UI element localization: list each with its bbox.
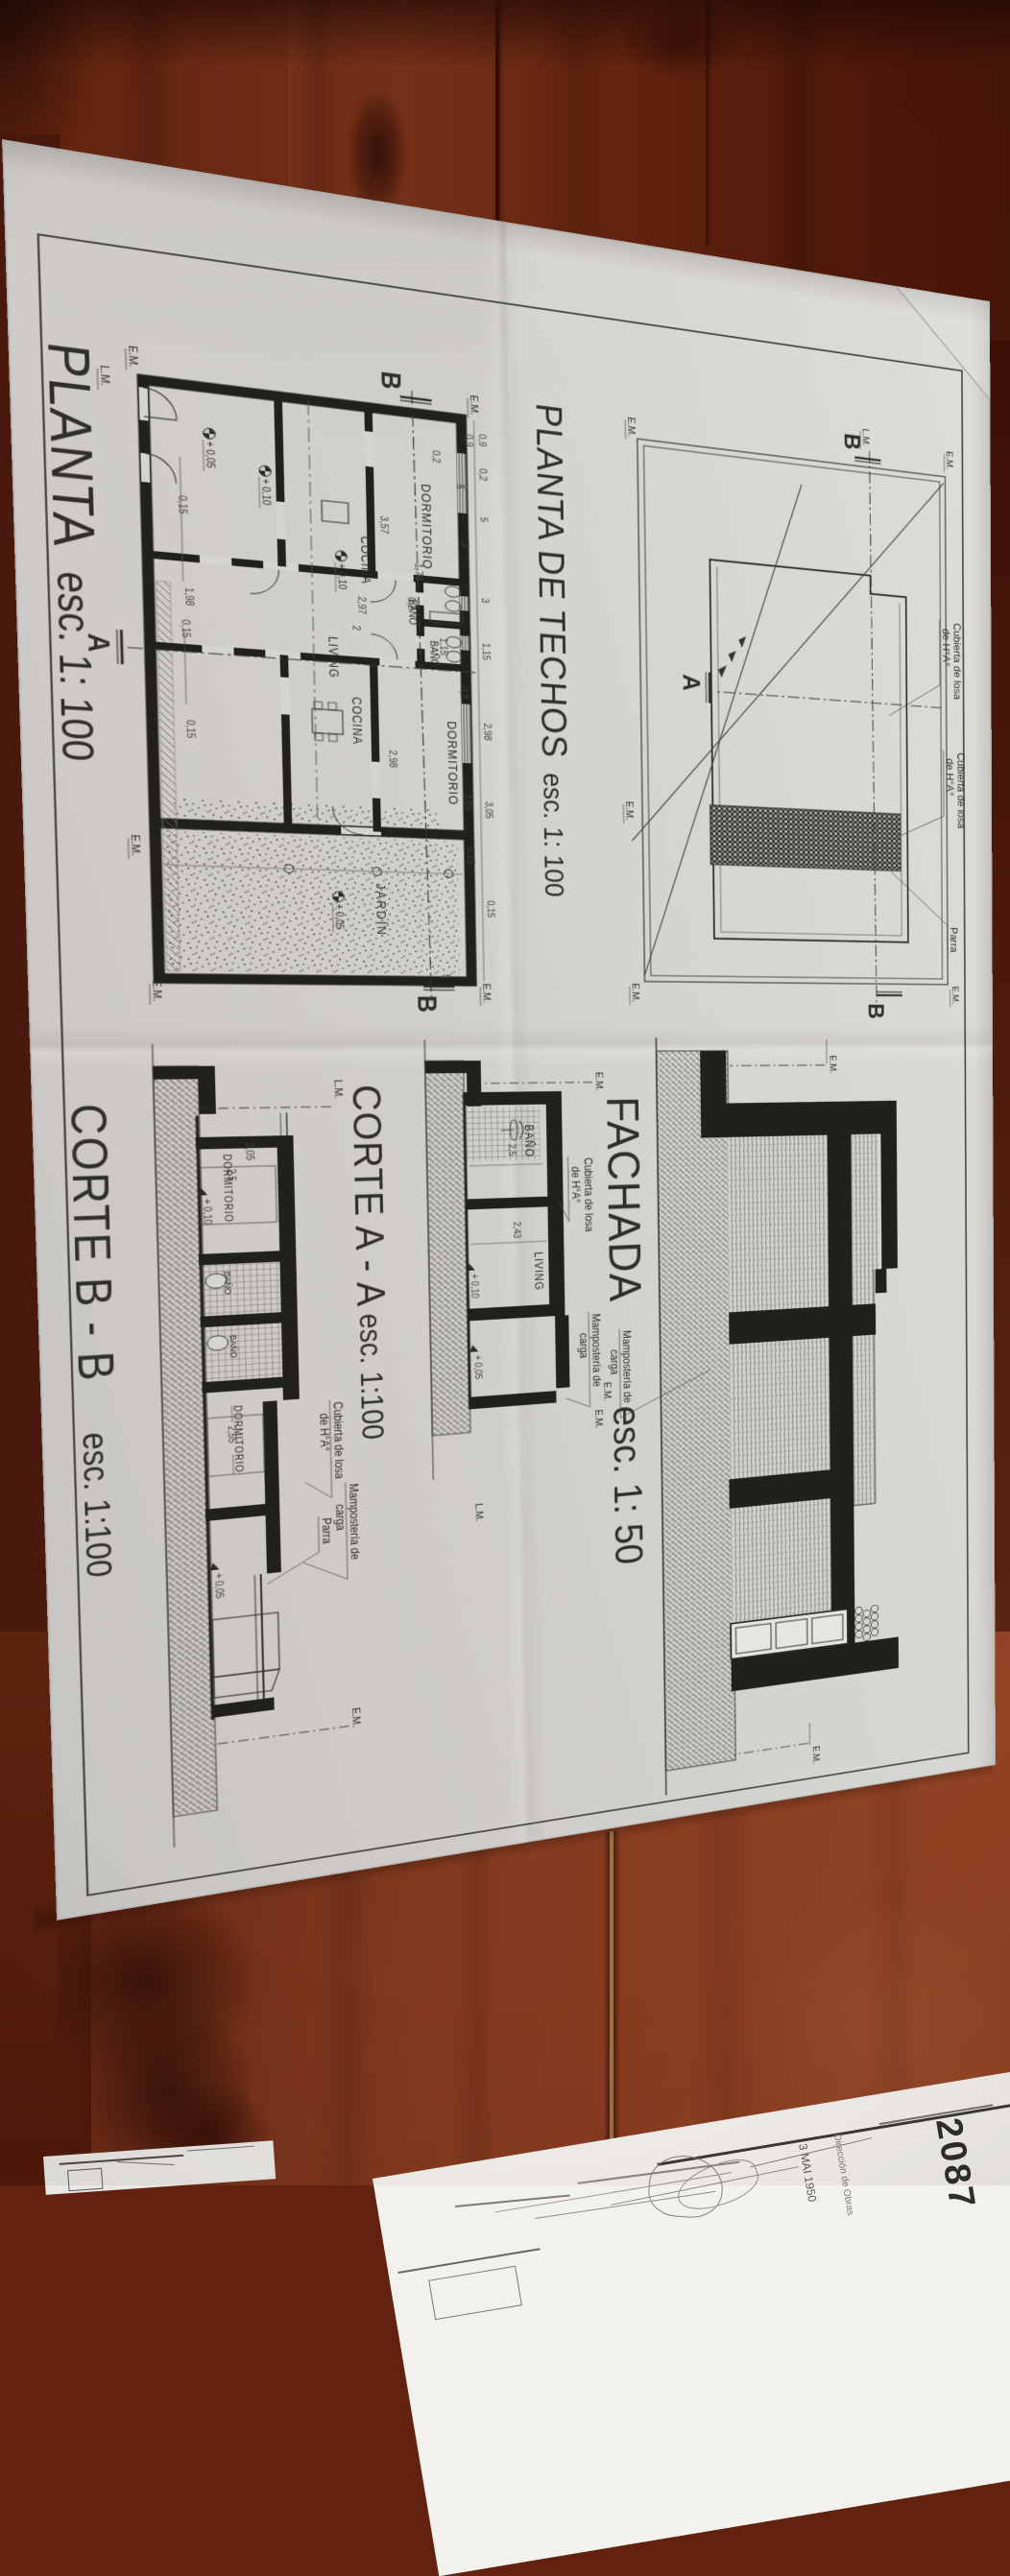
svg-text:esc. 1: 100: esc. 1: 100 — [48, 570, 104, 763]
svg-text:2,55: 2,55 — [226, 1425, 237, 1443]
svg-text:E.M.: E.M. — [944, 450, 953, 470]
svg-text:1,98: 1,98 — [183, 587, 195, 607]
svg-text:2,97: 2,97 — [356, 596, 368, 615]
svg-text:B: B — [863, 1003, 887, 1019]
svg-text:+ 0,05: + 0,05 — [472, 1355, 483, 1380]
svg-text:0,15: 0,15 — [177, 495, 188, 515]
svg-text:BAÑO: BAÑO — [222, 1271, 233, 1295]
svg-text:CORTE B - B: CORTE B - B — [59, 1104, 123, 1384]
svg-text:LIVING: LIVING — [325, 636, 339, 680]
svg-text:E.M.: E.M. — [810, 1745, 820, 1764]
svg-text:3,57: 3,57 — [378, 515, 389, 535]
svg-text:Parra: Parra — [949, 927, 960, 953]
svg-text:DORMITORIO: DORMITORIO — [419, 483, 435, 570]
svg-text:A: A — [678, 674, 704, 692]
svg-text:L.M.: L.M. — [97, 365, 110, 387]
svg-text:E.M.: E.M. — [349, 1707, 361, 1729]
svg-text:de H°A°: de H°A° — [940, 629, 951, 667]
svg-text:de H°A°: de H°A° — [569, 1166, 582, 1204]
svg-text:5: 5 — [441, 974, 451, 979]
svg-text:esc. 1: 100: esc. 1: 100 — [538, 773, 570, 897]
svg-text:2: 2 — [350, 625, 361, 631]
svg-text:+ 0,10: + 0,10 — [469, 1274, 480, 1299]
svg-text:esc. 1:100: esc. 1:100 — [75, 1431, 121, 1580]
svg-text:PLANTA DE TECHOS: PLANTA DE TECHOS — [528, 401, 574, 759]
svg-text:3,05: 3,05 — [484, 801, 494, 819]
svg-text:0,2: 0,2 — [406, 597, 417, 610]
svg-text:E.M.: E.M. — [468, 394, 479, 417]
svg-text:1,15: 1,15 — [438, 637, 448, 656]
svg-text:0,9: 0,9 — [464, 434, 474, 447]
svg-text:DORMITORIO: DORMITORIO — [221, 1154, 233, 1223]
svg-text:carga: carga — [577, 1332, 589, 1359]
svg-text:2,98: 2,98 — [482, 723, 493, 741]
svg-text:0,15: 0,15 — [485, 900, 495, 918]
svg-text:DORMITORIO: DORMITORIO — [445, 721, 461, 806]
svg-text:E.M.: E.M. — [128, 834, 141, 856]
svg-text:0,2: 0,2 — [458, 685, 469, 699]
svg-text:E.M.: E.M. — [630, 983, 640, 1002]
svg-text:5: 5 — [454, 484, 465, 489]
svg-text:esc. 1:100: esc. 1:100 — [352, 1313, 389, 1442]
svg-text:0,15: 0,15 — [465, 847, 475, 864]
svg-text:3,05: 3,05 — [462, 793, 472, 811]
svg-text:0,15: 0,15 — [180, 619, 191, 638]
svg-text:2,05: 2,05 — [244, 1142, 255, 1160]
svg-text:2,43: 2,43 — [512, 1222, 522, 1239]
svg-text:E.M.: E.M. — [625, 417, 636, 438]
svg-text:FACHADA: FACHADA — [597, 1096, 650, 1303]
svg-text:Cubierta de losa: Cubierta de losa — [955, 752, 967, 829]
svg-text:5: 5 — [478, 516, 489, 522]
svg-text:Mampostería de: Mampostería de — [589, 1313, 602, 1387]
svg-text:PLANTA: PLANTA — [35, 339, 106, 552]
svg-text:+ 0,10: + 0,10 — [202, 1199, 213, 1225]
svg-text:BAÑO: BAÑO — [522, 1125, 536, 1158]
svg-text:+ 0,10: + 0,10 — [336, 563, 348, 590]
svg-text:Cubierta de losa: Cubierta de losa — [582, 1157, 594, 1233]
svg-text:de H°A°: de H°A° — [317, 1413, 330, 1452]
svg-text:+ 0,05: + 0,05 — [333, 904, 345, 930]
svg-text:COCINA: COCINA — [349, 697, 363, 746]
svg-text:Parra: Parra — [319, 1517, 332, 1545]
svg-text:0,9: 0,9 — [477, 434, 488, 447]
svg-text:Cubierta de losa: Cubierta de losa — [951, 623, 964, 701]
svg-text:A: A — [81, 632, 114, 654]
svg-text:E.M.: E.M. — [480, 984, 492, 1004]
svg-text:BAÑO: BAÑO — [228, 1334, 239, 1358]
svg-text:E.M.: E.M. — [126, 345, 139, 369]
svg-text:LIVING: LIVING — [532, 1252, 544, 1291]
svg-text:E.M.: E.M. — [828, 1055, 837, 1073]
svg-text:E.M.: E.M. — [950, 987, 959, 1005]
svg-text:JARDÍN: JARDÍN — [373, 883, 391, 937]
svg-text:0,2: 0,2 — [430, 450, 441, 464]
svg-text:Mampostería de: Mampostería de — [620, 1330, 633, 1403]
svg-text:L.M.: L.M. — [472, 1503, 484, 1522]
svg-text:carga: carga — [608, 1349, 619, 1376]
svg-text:2,5: 2,5 — [226, 1169, 237, 1182]
svg-text:Cubierta de losa: Cubierta de losa — [330, 1401, 345, 1480]
svg-text:E.M.: E.M. — [149, 980, 162, 1001]
svg-text:0,15: 0,15 — [184, 720, 196, 739]
svg-text:Mampostería de: Mampostería de — [347, 1483, 361, 1561]
svg-text:E.M.: E.M. — [623, 800, 634, 821]
svg-text:esc. 1: 50: esc. 1: 50 — [605, 1404, 650, 1567]
svg-text:B: B — [375, 370, 405, 392]
svg-text:1,76: 1,76 — [413, 562, 423, 581]
svg-text:B: B — [412, 995, 442, 1013]
svg-text:E.M.: E.M. — [592, 1409, 603, 1429]
svg-text:L.M.: L.M. — [331, 1080, 344, 1099]
svg-text:E.M.: E.M. — [593, 1072, 604, 1091]
svg-text:0,2: 0,2 — [477, 468, 488, 482]
svg-text:+ 0,10: + 0,10 — [260, 478, 272, 506]
svg-text:E.M.: E.M. — [601, 1382, 612, 1402]
svg-text:de H°A°: de H°A° — [944, 758, 955, 797]
svg-text:L.M.: L.M. — [860, 428, 870, 447]
svg-text:COCINA: COCINA — [358, 536, 372, 585]
svg-text:2,98: 2,98 — [387, 750, 397, 768]
svg-text:+ 0,05: + 0,05 — [204, 441, 216, 468]
svg-text:2,5: 2,5 — [507, 1144, 517, 1157]
svg-text:1,15: 1,15 — [481, 642, 492, 660]
svg-text:+ 0,05: + 0,05 — [213, 1573, 225, 1599]
svg-text:3: 3 — [480, 598, 491, 604]
svg-text:carga: carga — [333, 1504, 347, 1533]
svg-text:3: 3 — [460, 542, 470, 548]
svg-text:CORTE A - A: CORTE A - A — [343, 1085, 393, 1308]
